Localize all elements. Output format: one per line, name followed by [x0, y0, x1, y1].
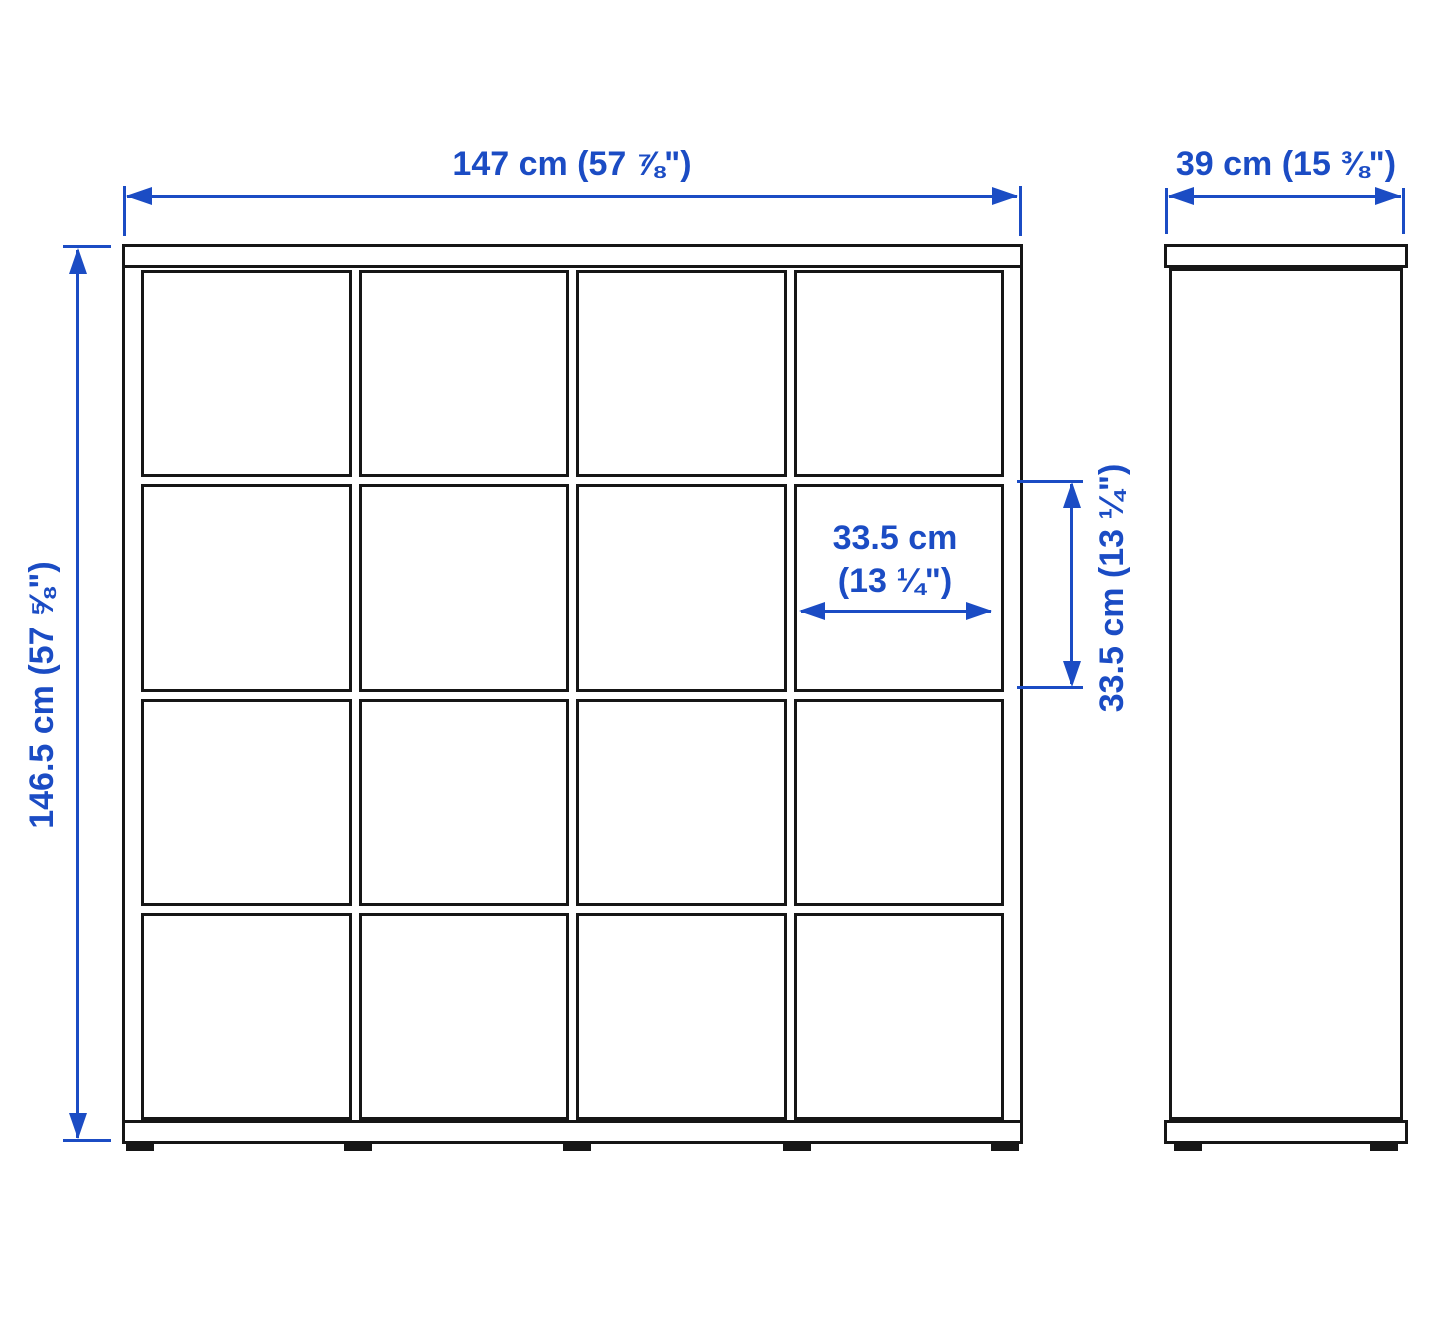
- height-dimension-tick-bottom: [63, 1139, 111, 1142]
- side-view-unit: [1164, 244, 1408, 1144]
- shelf-cell: [576, 913, 787, 1120]
- shelf-cell: [359, 270, 570, 477]
- arrowhead-down-icon: [1063, 661, 1081, 687]
- shelf-cell: [794, 913, 1005, 1120]
- arrowhead-left-icon: [1168, 187, 1194, 205]
- shelf-cell: [359, 484, 570, 691]
- cell-height-dimension-label: 33.5 cm (13 ¼"): [1092, 448, 1136, 728]
- side-foot: [1174, 1144, 1202, 1151]
- side-panel: [1169, 268, 1403, 1120]
- shelf-cell: [359, 699, 570, 906]
- shelf-cell: [141, 913, 352, 1120]
- shelf-cell: [576, 699, 787, 906]
- cell-height-dimension-line: [1070, 484, 1073, 684]
- front-view-unit: [122, 244, 1023, 1144]
- shelf-cell: [141, 484, 352, 691]
- arrowhead-up-icon: [1063, 482, 1081, 508]
- arrowhead-right-icon: [966, 602, 992, 620]
- width-dimension-label: 147 cm (57 ⅞"): [272, 144, 872, 184]
- front-foot: [783, 1144, 811, 1151]
- height-dimension-label: 146.5 cm (57 ⅝"): [22, 465, 66, 925]
- dimension-diagram: 147 cm (57 ⅞") 39 cm (15 ⅜") 146.5 cm (5…: [0, 0, 1440, 1332]
- depth-dimension-label: 39 cm (15 ⅜"): [1036, 144, 1440, 184]
- width-dimension-tick-right: [1019, 186, 1022, 236]
- front-top-panel: [122, 244, 1023, 268]
- shelf-cell: [576, 270, 787, 477]
- front-foot: [563, 1144, 591, 1151]
- shelf-cell: [141, 270, 352, 477]
- cell-width-dimension-label-line2: (13 ¼"): [795, 561, 995, 601]
- shelf-cell: [794, 270, 1005, 477]
- height-dimension-line: [76, 250, 79, 1138]
- front-foot: [991, 1144, 1019, 1151]
- front-foot: [344, 1144, 372, 1151]
- arrowhead-down-icon: [69, 1113, 87, 1139]
- cell-width-dimension-label-line1: 33.5 cm: [795, 518, 995, 558]
- shelf-cell: [576, 484, 787, 691]
- depth-dimension-line: [1169, 195, 1401, 198]
- shelf-cell: [359, 913, 570, 1120]
- shelf-cell: [794, 699, 1005, 906]
- side-foot: [1370, 1144, 1398, 1151]
- width-dimension-line: [127, 195, 1017, 198]
- cell-width-dimension-line: [801, 610, 991, 613]
- side-top-panel: [1164, 244, 1408, 268]
- arrowhead-right-icon: [1375, 187, 1401, 205]
- front-bottom-panel: [122, 1120, 1023, 1144]
- arrowhead-left-icon: [799, 602, 825, 620]
- side-bottom-panel: [1164, 1120, 1408, 1144]
- front-grid: [122, 268, 1023, 1120]
- shelf-cell: [141, 699, 352, 906]
- depth-dimension-tick-right: [1402, 188, 1405, 234]
- arrowhead-left-icon: [126, 187, 152, 205]
- arrowhead-up-icon: [69, 248, 87, 274]
- arrowhead-right-icon: [992, 187, 1018, 205]
- front-foot: [126, 1144, 154, 1151]
